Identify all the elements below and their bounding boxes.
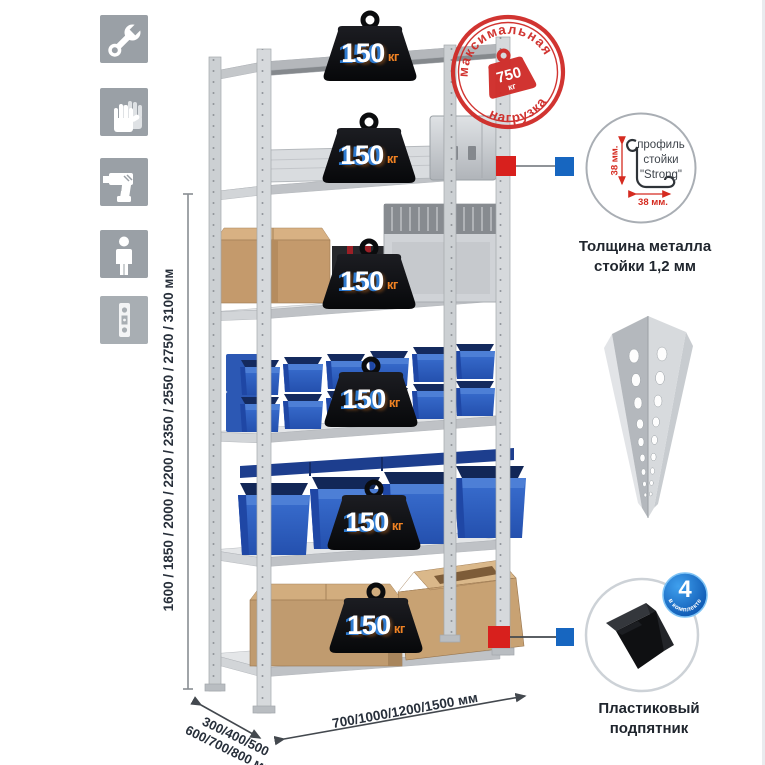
badge-value: 150 <box>340 266 384 296</box>
load-badge: 150кг <box>326 478 422 556</box>
drill-icon <box>100 158 148 206</box>
badge-value: 150 <box>347 610 391 640</box>
badge-unit: кг <box>392 518 403 533</box>
gloves-icon <box>100 88 148 136</box>
load-badge: 150кг <box>321 237 417 315</box>
profile-label: профиль стойки "Strong" <box>619 138 703 183</box>
profile-dim-vertical-label: 38 мм. <box>610 136 621 186</box>
callout-marker-red-top <box>496 156 516 176</box>
foot-caption-line2: подпятник <box>578 719 720 739</box>
cardboard-box-top <box>216 228 330 303</box>
profile-label-line1: профиль <box>619 138 703 153</box>
perforated-strip-icon <box>100 296 148 344</box>
quantity-badge: 4 в комплекте <box>661 571 709 619</box>
load-badge: 150кг <box>328 581 424 659</box>
foot-caption: Пластиковый подпятник <box>578 699 720 738</box>
badge-value: 150 <box>341 38 385 68</box>
badge-unit: кг <box>387 277 398 292</box>
stamp-weight-icon: 750 кг <box>479 44 537 99</box>
callout-top <box>496 156 574 176</box>
load-badge: 150кг <box>323 355 419 433</box>
person-icon <box>100 230 148 278</box>
foot-caption-line1: Пластиковый <box>578 699 720 719</box>
load-badge: 150кг <box>322 9 418 87</box>
badge-value: 150 <box>342 384 386 414</box>
max-load-stamp: максимальная нагрузка 750 кг <box>448 12 570 134</box>
callout-bottom <box>488 626 574 648</box>
badge-value: 150 <box>345 507 389 537</box>
badge-unit: кг <box>387 151 398 166</box>
profile-dim-horizontal-label: 38 мм. <box>613 197 693 208</box>
thickness-caption-line1: Толщина металла <box>574 237 716 257</box>
callout-marker-blue-bottom <box>556 628 574 646</box>
profile-label-line3: "Strong" <box>619 168 703 183</box>
product-infographic: 150кг 150кг 150кг 150кг 150кг 150кг макс… <box>0 0 765 765</box>
thickness-caption: Толщина металла стойки 1,2 мм <box>574 237 716 276</box>
feature-icon-column <box>100 15 148 344</box>
badge-handle <box>363 13 377 27</box>
badge-value: 150 <box>340 140 384 170</box>
height-dimension-line <box>183 194 193 689</box>
callout-marker-red-bottom <box>488 626 510 648</box>
wrench-icon <box>100 15 148 63</box>
callout-marker-blue-top <box>555 157 574 176</box>
badge-unit: кг <box>389 395 400 410</box>
thickness-caption-line2: стойки 1,2 мм <box>574 257 716 277</box>
load-badge: 150кг <box>321 111 417 189</box>
quantity-badge-value: 4 <box>678 576 692 603</box>
profile-label-line2: стойки <box>619 153 703 168</box>
height-dimension-label: 1600 / 1850 / 2000 / 2200 / 2350 / 2550 … <box>161 190 179 690</box>
badge-unit: кг <box>388 49 399 64</box>
rack-post-rear-left <box>205 57 225 691</box>
badge-unit: кг <box>394 621 405 636</box>
angle-post-detail <box>604 316 693 518</box>
